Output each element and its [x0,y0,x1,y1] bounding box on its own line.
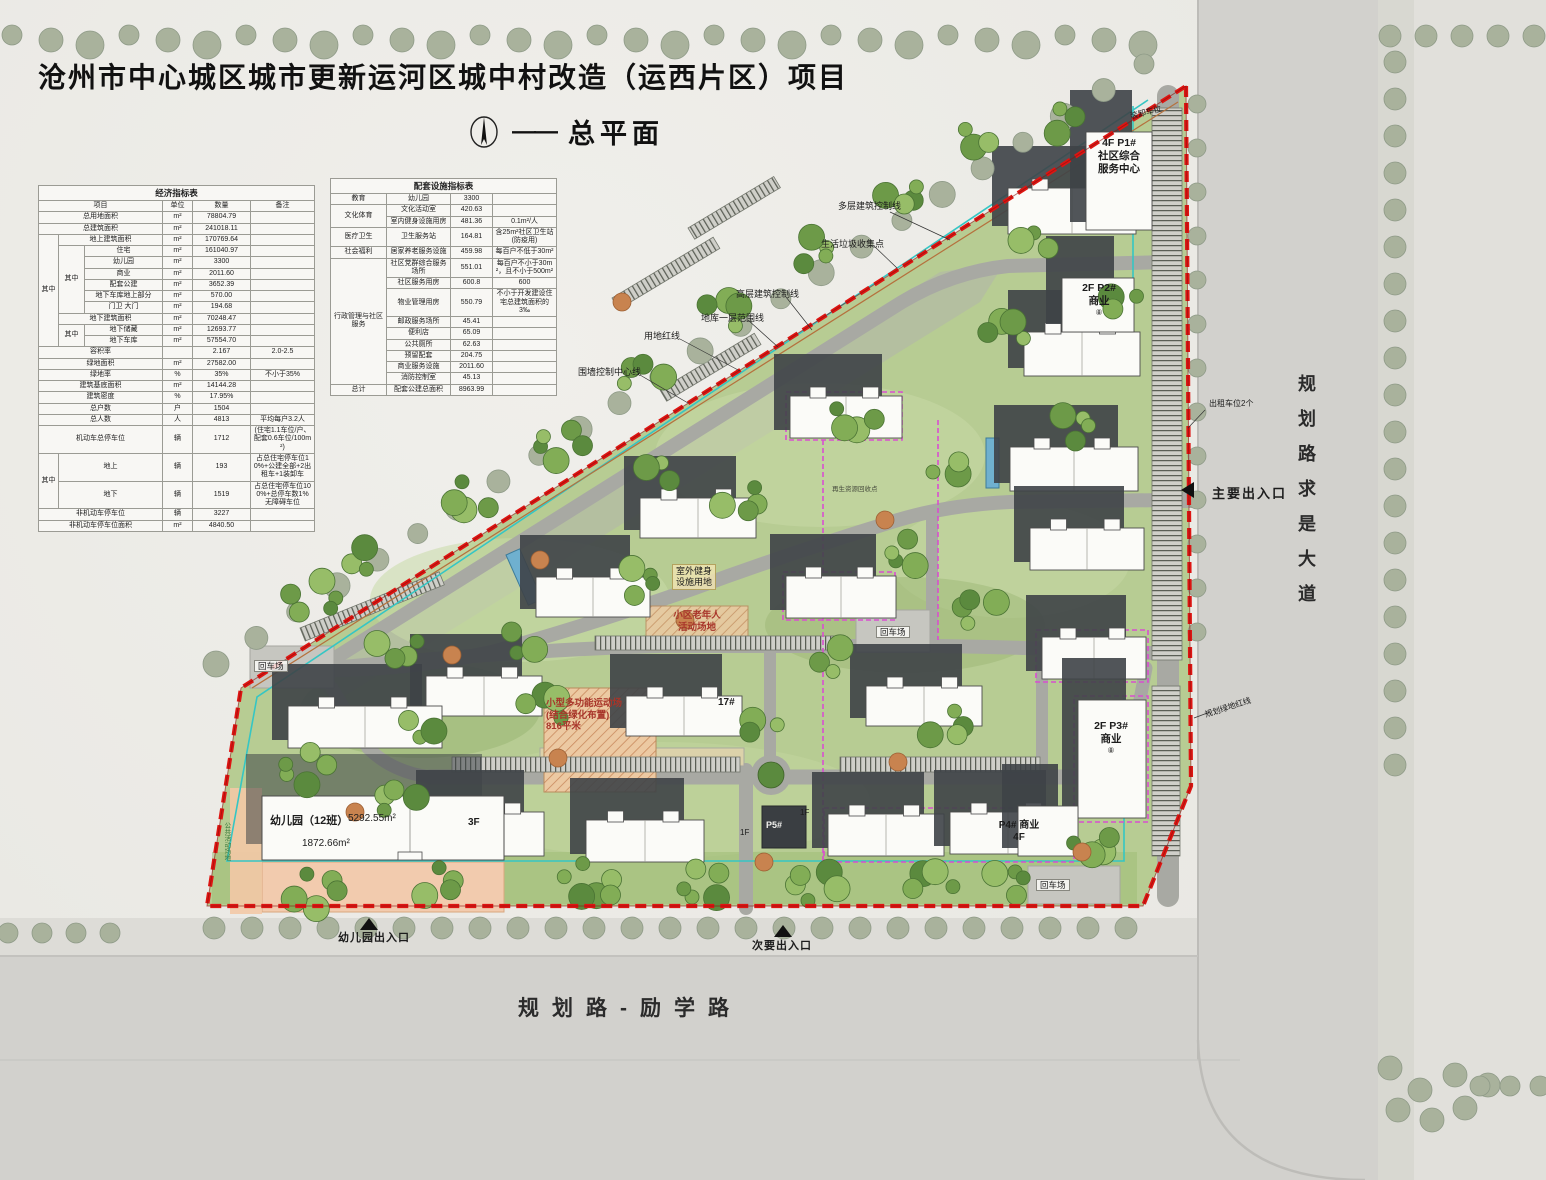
site-redline-label: 用地红线 [644,331,680,342]
turnaround-label-southeast: 回车场 [1036,879,1070,891]
p3-unit-mark: ⑧ [1080,746,1142,756]
turnaround-label-center: 回车场 [876,626,910,638]
subtitle-text: 总平面 [568,112,664,151]
p1-community-center-label: 4F P1# 社区综合 服务中心 [1086,137,1152,175]
elderly-activity-area-label: 小区老年人 活动场地 [652,610,742,633]
outdoor-fitness-label: 室外健身 设施用地 [672,564,716,590]
p5-label: P5# [766,820,782,831]
recycle-point-label: 再生资源回收点 [832,486,878,494]
public-activity-area-label: 公共活动场地 [222,822,230,861]
road-name-qiushi-avenue: 规划路求是大道 [1294,374,1316,619]
facilities-indicators-table: 配套设施指标表教育幼儿园3300文化体育文化活动室420.63室内健身设施用房4… [330,178,557,396]
road-name-lixue-road: 规划路-励学路 [518,996,742,1022]
site-plan-sheet: 沧州市中心城区城市更新运河区城中村改造（运西片区）项目 —— 总平面 经济指标表… [0,0,1546,1180]
page-title: 沧州市中心城区城市更新运河区城中村改造（运西片区）项目 [38,56,848,96]
floor-1f-label-b: 1F [800,808,809,818]
subtitle-dash: —— [512,118,556,146]
main-entrance-arrow-icon [1181,482,1194,498]
building-17-label: 17# [718,697,735,709]
p2-commercial-label: 2F P2# 商业 ⑧ [1066,282,1132,317]
highrise-control-line-label: 高层建筑控制线 [736,289,799,300]
north-arrow-icon [468,115,500,149]
kindergarten-floors-label: 3F [468,817,480,829]
p2-unit-mark: ⑧ [1066,308,1132,318]
kindergarten-site-area-label: 5292.55m² [348,813,396,825]
waste-collection-point-label: 生活垃圾收集点 [821,239,884,250]
floor-1f-label-a: 1F [740,828,749,838]
wall-centerline-label: 围墙控制中心线 [578,367,641,378]
main-entrance-label: 主要出入口 [1212,486,1287,502]
multi-story-control-line-label: 多层建筑控制线 [838,201,901,212]
economic-indicators-table: 经济指标表项目单位数量备注总用地面积m²78804.79总建筑面积m²24101… [38,185,315,532]
multiuse-sport-court-label: 小型多功能运动场 (结合绿化布置) 816平米 [546,698,622,733]
p3-commercial-label: 2F P3# 商业 ⑧ [1080,720,1142,755]
kindergarten-entrance-label: 幼儿园出入口 [338,932,410,945]
subtitle-block: —— 总平面 [468,112,664,151]
kindergarten-name-label: 幼儿园（12班） [270,815,348,828]
turnaround-label-west: 回车场 [254,660,288,672]
taxi-spaces-label: 出租车位2个 [1209,399,1253,409]
basement-extent-line-label: 地库一层范围线 [701,313,764,324]
kindergarten-building-area-label: 1872.66m² [302,838,350,850]
kindergarten-entrance-arrow-icon [360,918,378,930]
secondary-entrance-label: 次要出入口 [752,940,812,953]
secondary-entrance-arrow-icon [774,925,792,937]
p4-commercial-label: P4# 商业 4F [982,820,1056,844]
